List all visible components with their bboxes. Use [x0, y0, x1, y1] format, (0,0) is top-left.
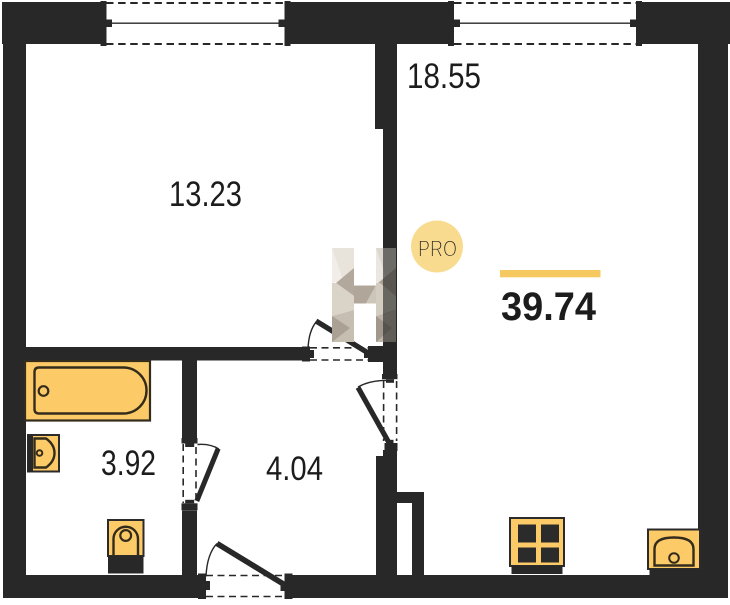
- svg-text:39.74: 39.74: [501, 285, 597, 329]
- svg-text:18.55: 18.55: [407, 57, 481, 96]
- svg-text:PRO: PRO: [418, 236, 457, 262]
- svg-text:13.23: 13.23: [169, 175, 242, 214]
- svg-text:3.92: 3.92: [101, 444, 156, 483]
- svg-text:4.04: 4.04: [266, 450, 323, 488]
